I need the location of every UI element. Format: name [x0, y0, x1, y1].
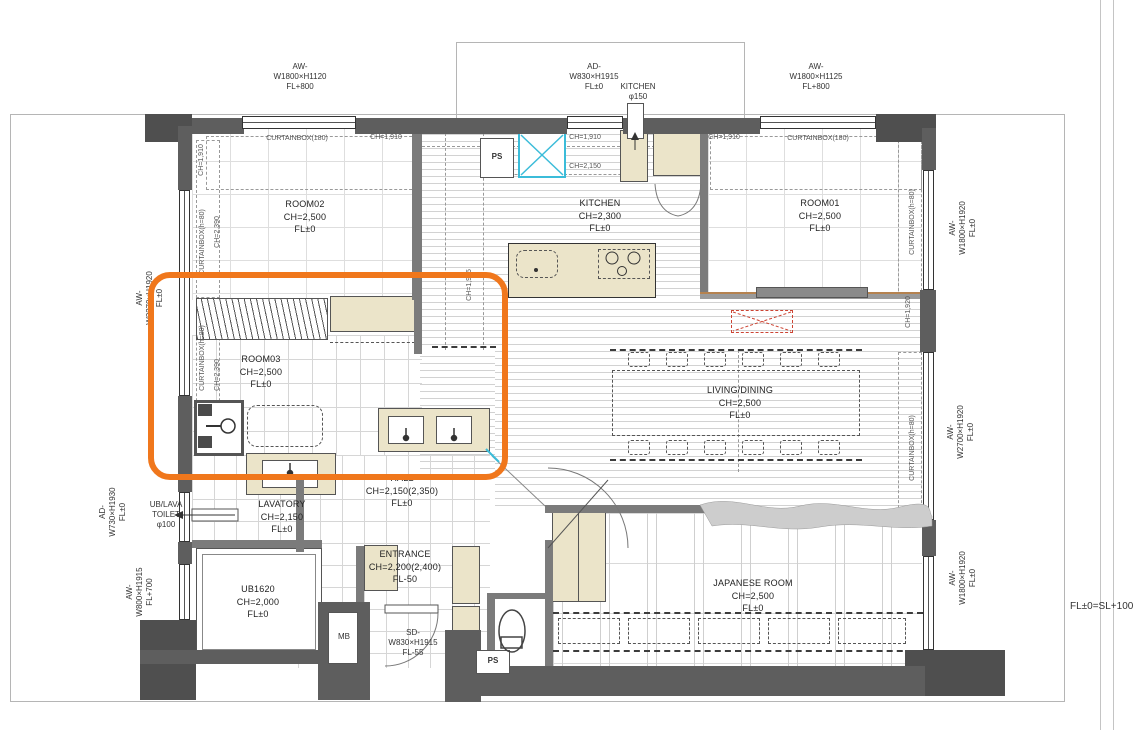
- partition-kitchen-room01: [700, 128, 708, 296]
- japanese-storage: [558, 618, 620, 644]
- ch-label: CH=1,910: [370, 134, 402, 142]
- room-label-room02: ROOM02 CH=2,500 FL±0: [284, 198, 326, 236]
- japanese-storage: [698, 618, 760, 644]
- dining-chair: [742, 440, 764, 455]
- opening-label-sd-entrance: SD- W830×H1915 FL-55: [388, 628, 437, 658]
- opening-label-ad-left: AD- W730×H1930 FL±0: [98, 487, 128, 536]
- opening-label-aw-right-3: AW- W1800×H1920 FL±0: [948, 551, 978, 605]
- opening-label-aw-top-left: AW- W1800×H1120 FL+800: [274, 62, 327, 92]
- dining-chair: [666, 352, 688, 367]
- wall-segment: [920, 290, 936, 352]
- kitchen-cabinet-2: [653, 130, 703, 176]
- ceiling-zone-room01: [710, 136, 922, 190]
- window-aw-top-right: [760, 116, 876, 129]
- wall-segment: [140, 650, 320, 664]
- mb-label: MB: [338, 632, 350, 642]
- ch-label: CH=1,910: [708, 134, 740, 142]
- wall-segment: [922, 128, 936, 170]
- kitchen-sink: [516, 250, 558, 278]
- window-aw-top-left: [242, 116, 356, 129]
- ch-label: CH=1,910: [569, 134, 601, 142]
- ac-unit-marker: [731, 310, 793, 333]
- window-aw-right-japanese: [923, 556, 934, 650]
- dining-chair: [666, 440, 688, 455]
- japanese-closet-outline: [553, 650, 923, 652]
- dining-chair: [818, 440, 840, 455]
- wall-segment: [922, 520, 936, 556]
- ps-label-bottom: PS: [488, 656, 499, 666]
- wall-segment: [355, 118, 567, 134]
- dining-chair: [742, 352, 764, 367]
- partition-wc-japanese: [545, 540, 553, 668]
- wall-segment: [455, 666, 925, 696]
- curtainbox-label: CURTAINBOX(180): [787, 135, 849, 143]
- ceiling-zone-room02: [206, 136, 422, 190]
- wall-segment: [192, 118, 244, 134]
- window-aw-left-low: [179, 564, 190, 620]
- wall-segment: [178, 126, 192, 190]
- dining-chair: [818, 352, 840, 367]
- floor-level-note: FL±0=SL+100: [1070, 602, 1133, 612]
- opening-label-ad-top: AD- W830×H1915 FL±0: [569, 62, 618, 92]
- japanese-closet-divider: [578, 511, 579, 601]
- ch-label: CH=1,920: [905, 296, 913, 328]
- entrance-cabinet: [452, 546, 480, 604]
- japanese-storage: [768, 618, 830, 644]
- kitchen-stove: [598, 249, 650, 279]
- dining-chair: [780, 440, 802, 455]
- door-ad-top: [567, 116, 623, 129]
- wc-wall-top: [487, 593, 545, 599]
- japanese-storage: [838, 618, 906, 644]
- opening-label-ub-lava: UB/LAVA TOILET φ100: [150, 500, 183, 530]
- wall-segment: [178, 542, 192, 564]
- room-label-japanese: JAPANESE ROOM CH=2,500 FL±0: [713, 577, 792, 615]
- site-boundary-line: [1113, 0, 1114, 730]
- room-label-lavatory: LAVATORY CH=2,150 FL±0: [258, 498, 305, 536]
- curtainbox-label: CURTAINBOX(h=80): [909, 415, 917, 481]
- curtainbox-label: CURTAINBOX(180): [266, 135, 328, 143]
- room-label-kitchen: KITCHEN CH=2,300 FL±0: [579, 197, 621, 235]
- room-label-entrance: ENTRANCE CH=2,200(2,400) FL-50: [369, 548, 441, 586]
- room01-sliding-door: [756, 287, 868, 298]
- dining-set-outline: [610, 349, 862, 351]
- dining-chair: [704, 440, 726, 455]
- opening-label-aw-right-2: AW- W2700×H1920 FL±0: [946, 405, 976, 459]
- window-aw-right-living: [923, 352, 934, 520]
- window-aw-right-room01: [923, 170, 934, 290]
- partition-japanese-top: [545, 505, 707, 513]
- curtainbox-label: CURTAINBOX(h=80): [909, 189, 917, 255]
- dining-chair: [628, 352, 650, 367]
- curtainbox-label: CURTAINBOX(h=80): [199, 209, 207, 275]
- ch-label: CH=2,390: [214, 216, 222, 248]
- room-label-room01: ROOM01 CH=2,500 FL±0: [799, 197, 841, 235]
- ch-label: CH=2,150: [569, 163, 601, 171]
- opening-label-aw-top-right: AW- W1800×H1125 FL+800: [790, 62, 843, 92]
- opening-label-kitchen-duct: KITCHEN φ150: [620, 82, 655, 102]
- dining-chair: [704, 352, 726, 367]
- dining-set-outline: [610, 459, 862, 461]
- ch-label: CH=1,910: [198, 144, 206, 176]
- japanese-closet: [552, 510, 606, 602]
- kitchen-duct: [627, 103, 644, 139]
- partition-lavatory-ub: [192, 540, 322, 548]
- ps-label-top: PS: [492, 152, 503, 162]
- floor-plan: ROOM02 CH=2,500 FL±0 KITCHEN CH=2,300 FL…: [0, 0, 1148, 730]
- dining-chair: [780, 352, 802, 367]
- room-label-ub: UB1620 CH=2,000 FL±0: [237, 583, 279, 621]
- opening-label-aw-right-1: AW- W1800×H1920 FL±0: [948, 201, 978, 255]
- opening-label-aw-left-low: AW- W800×H1915 FL+700: [125, 567, 155, 616]
- japanese-storage: [628, 618, 690, 644]
- room-label-living-dining: LIVING/DINING CH=2,500 FL±0: [707, 384, 773, 422]
- highlight-region: [148, 272, 508, 480]
- dining-chair: [628, 440, 650, 455]
- refrigerator-space: [518, 132, 566, 178]
- site-boundary-line: [1100, 0, 1101, 730]
